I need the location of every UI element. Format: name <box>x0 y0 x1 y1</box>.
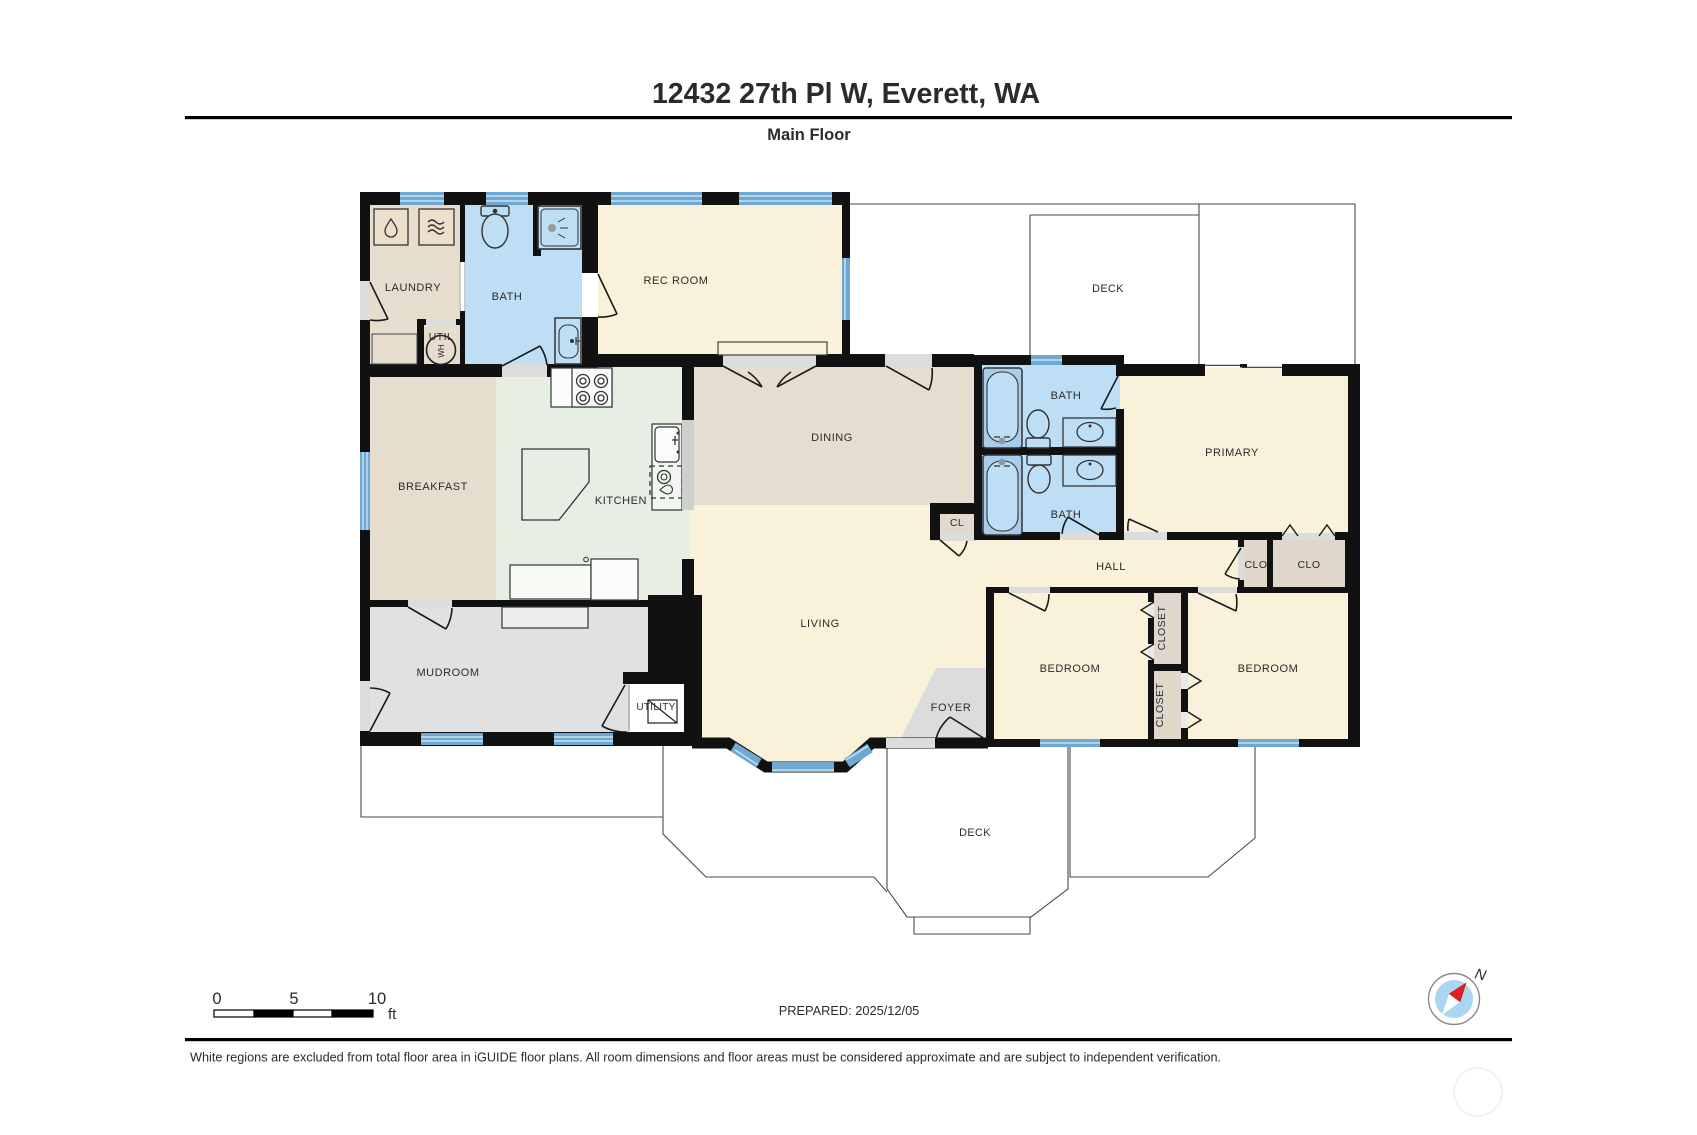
svg-text:REC ROOM: REC ROOM <box>644 275 709 287</box>
svg-text:5: 5 <box>289 990 298 1008</box>
svg-text:MUDROOM: MUDROOM <box>416 667 479 679</box>
svg-text:HALL: HALL <box>1096 561 1126 573</box>
svg-text:White regions are excluded fro: White regions are excluded from total fl… <box>190 1051 1221 1065</box>
svg-text:BEDROOM: BEDROOM <box>1238 663 1299 675</box>
svg-text:UTIL: UTIL <box>429 331 454 343</box>
svg-text:CLO: CLO <box>1298 559 1321 571</box>
svg-text:12432 27th Pl W, Everett, WA: 12432 27th Pl W, Everett, WA <box>652 78 1040 110</box>
svg-text:PREPARED: 2025/12/05: PREPARED: 2025/12/05 <box>779 1003 920 1018</box>
svg-text:CLO: CLO <box>1245 559 1268 571</box>
svg-text:10: 10 <box>368 990 386 1008</box>
svg-text:WH: WH <box>437 344 446 358</box>
svg-text:CLOSET: CLOSET <box>1154 683 1166 728</box>
svg-text:LAUNDRY: LAUNDRY <box>385 282 441 294</box>
svg-text:0: 0 <box>212 990 221 1008</box>
svg-text:CLOSET: CLOSET <box>1156 606 1168 651</box>
svg-text:ft: ft <box>388 1006 397 1023</box>
svg-text:BATH: BATH <box>1051 509 1082 521</box>
svg-text:UTILITY: UTILITY <box>636 702 675 713</box>
svg-text:DINING: DINING <box>811 432 853 444</box>
svg-text:CL: CL <box>950 517 964 529</box>
svg-text:FOYER: FOYER <box>931 702 972 714</box>
svg-text:LIVING: LIVING <box>800 618 839 630</box>
svg-text:Main Floor: Main Floor <box>767 126 851 144</box>
svg-text:BATH: BATH <box>492 291 523 303</box>
svg-text:DECK: DECK <box>959 827 991 839</box>
svg-text:DECK: DECK <box>1092 283 1124 295</box>
svg-text:KITCHEN: KITCHEN <box>595 495 647 507</box>
svg-text:BATH: BATH <box>1051 390 1082 402</box>
svg-text:BEDROOM: BEDROOM <box>1040 663 1101 675</box>
svg-text:PRIMARY: PRIMARY <box>1205 447 1259 459</box>
svg-text:BREAKFAST: BREAKFAST <box>398 481 468 493</box>
